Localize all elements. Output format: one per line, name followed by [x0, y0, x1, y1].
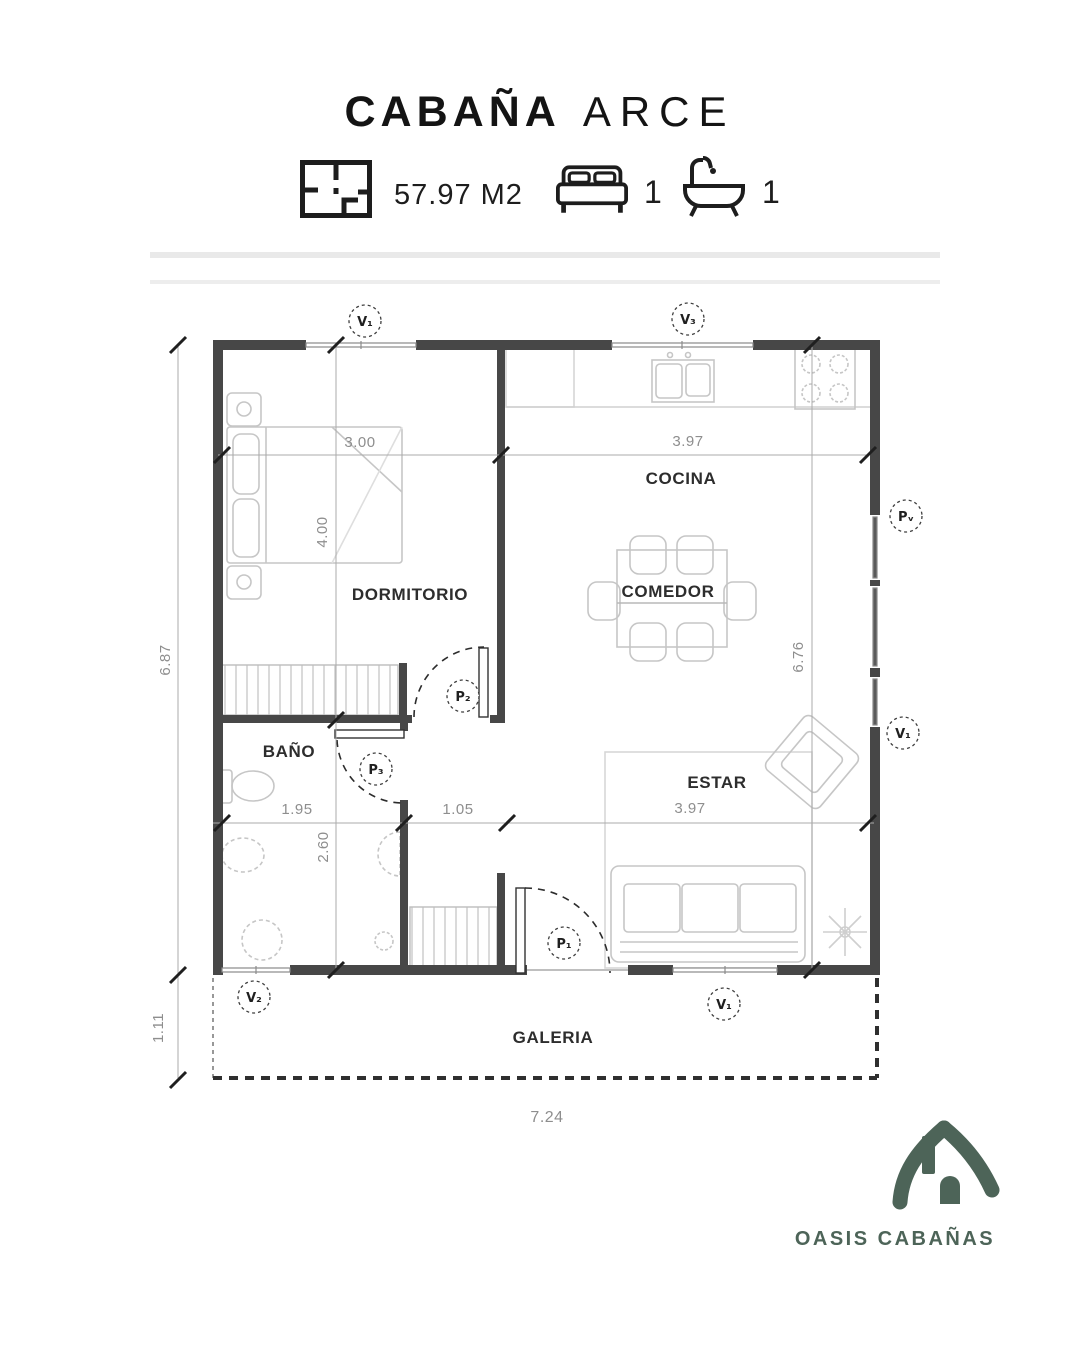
tag-v1-top: V₁ — [349, 305, 381, 337]
tag-p2: P₂ — [447, 680, 479, 712]
tag-p1: P₁ — [548, 927, 580, 959]
room-label-dormitorio: DORMITORIO — [352, 585, 468, 604]
brand-logo-icon — [838, 1112, 1058, 1216]
tag-v1-bottom: V₁ — [708, 988, 740, 1020]
svg-text:V₃: V₃ — [680, 313, 696, 328]
door-leaf-p2 — [479, 648, 488, 717]
room-label-comedor: COMEDOR — [622, 582, 715, 601]
dim-estar-width: 3.97 — [674, 800, 705, 817]
room-label-bano: BAÑO — [263, 741, 315, 761]
dim-dorm-width: 3.00 — [344, 434, 375, 451]
dim-bano-height: 2.60 — [315, 831, 332, 862]
dim-interior-height: 6.76 — [790, 641, 807, 672]
room-label-galeria: GALERIA — [513, 1028, 594, 1047]
dim-pasillo-width: 1.05 — [442, 801, 473, 818]
eave-lines — [150, 252, 940, 284]
dim-total-width: 7.24 — [530, 1109, 563, 1126]
house-icon — [900, 1128, 992, 1204]
tag-v3-top: V₃ — [672, 303, 704, 335]
brand-name: OASIS CABAÑAS — [780, 1228, 1010, 1251]
dim-galeria-depth: 1.11 — [150, 1013, 167, 1043]
furniture — [217, 347, 870, 968]
svg-text:P₂: P₂ — [455, 690, 470, 705]
svg-text:V₁: V₁ — [357, 315, 373, 330]
dim-cocina-width: 3.97 — [672, 433, 703, 450]
dim-bano-width: 1.95 — [281, 801, 312, 818]
tag-pv-right: Pᵥ — [890, 500, 922, 532]
tag-v1-right: V₁ — [887, 717, 919, 749]
svg-text:V₁: V₁ — [895, 727, 911, 742]
svg-text:P₁: P₁ — [556, 937, 571, 952]
door-leaf-p3 — [335, 730, 404, 738]
tag-v2-bottom: V₂ — [238, 981, 270, 1013]
floorplan-poster: CABAÑA ARCE 57.97 M2 1 1 — [0, 0, 1080, 1350]
bed — [227, 393, 402, 599]
svg-text:Pᵥ: Pᵥ — [898, 510, 914, 525]
dim-left-height: 6.87 — [157, 644, 174, 675]
door-leaf-p1 — [516, 888, 525, 973]
tag-p3: P₃ — [360, 753, 392, 785]
dim-dorm-height: 4.00 — [314, 516, 331, 547]
room-label-cocina: COCINA — [646, 469, 717, 488]
bathroom-fixtures — [217, 770, 400, 960]
door-threshold-p1 — [527, 969, 628, 971]
svg-text:P₃: P₃ — [368, 763, 383, 778]
opening-tags: V₁ V₃ V₂ V₁ Pᵥ V₁ P₁ P₂ P₃ — [238, 303, 922, 1020]
room-label-estar: ESTAR — [687, 773, 746, 792]
svg-text:V₂: V₂ — [246, 991, 262, 1006]
living-area — [605, 713, 861, 968]
stove — [795, 347, 855, 409]
plant — [823, 908, 867, 956]
svg-text:V₁: V₁ — [716, 998, 732, 1013]
